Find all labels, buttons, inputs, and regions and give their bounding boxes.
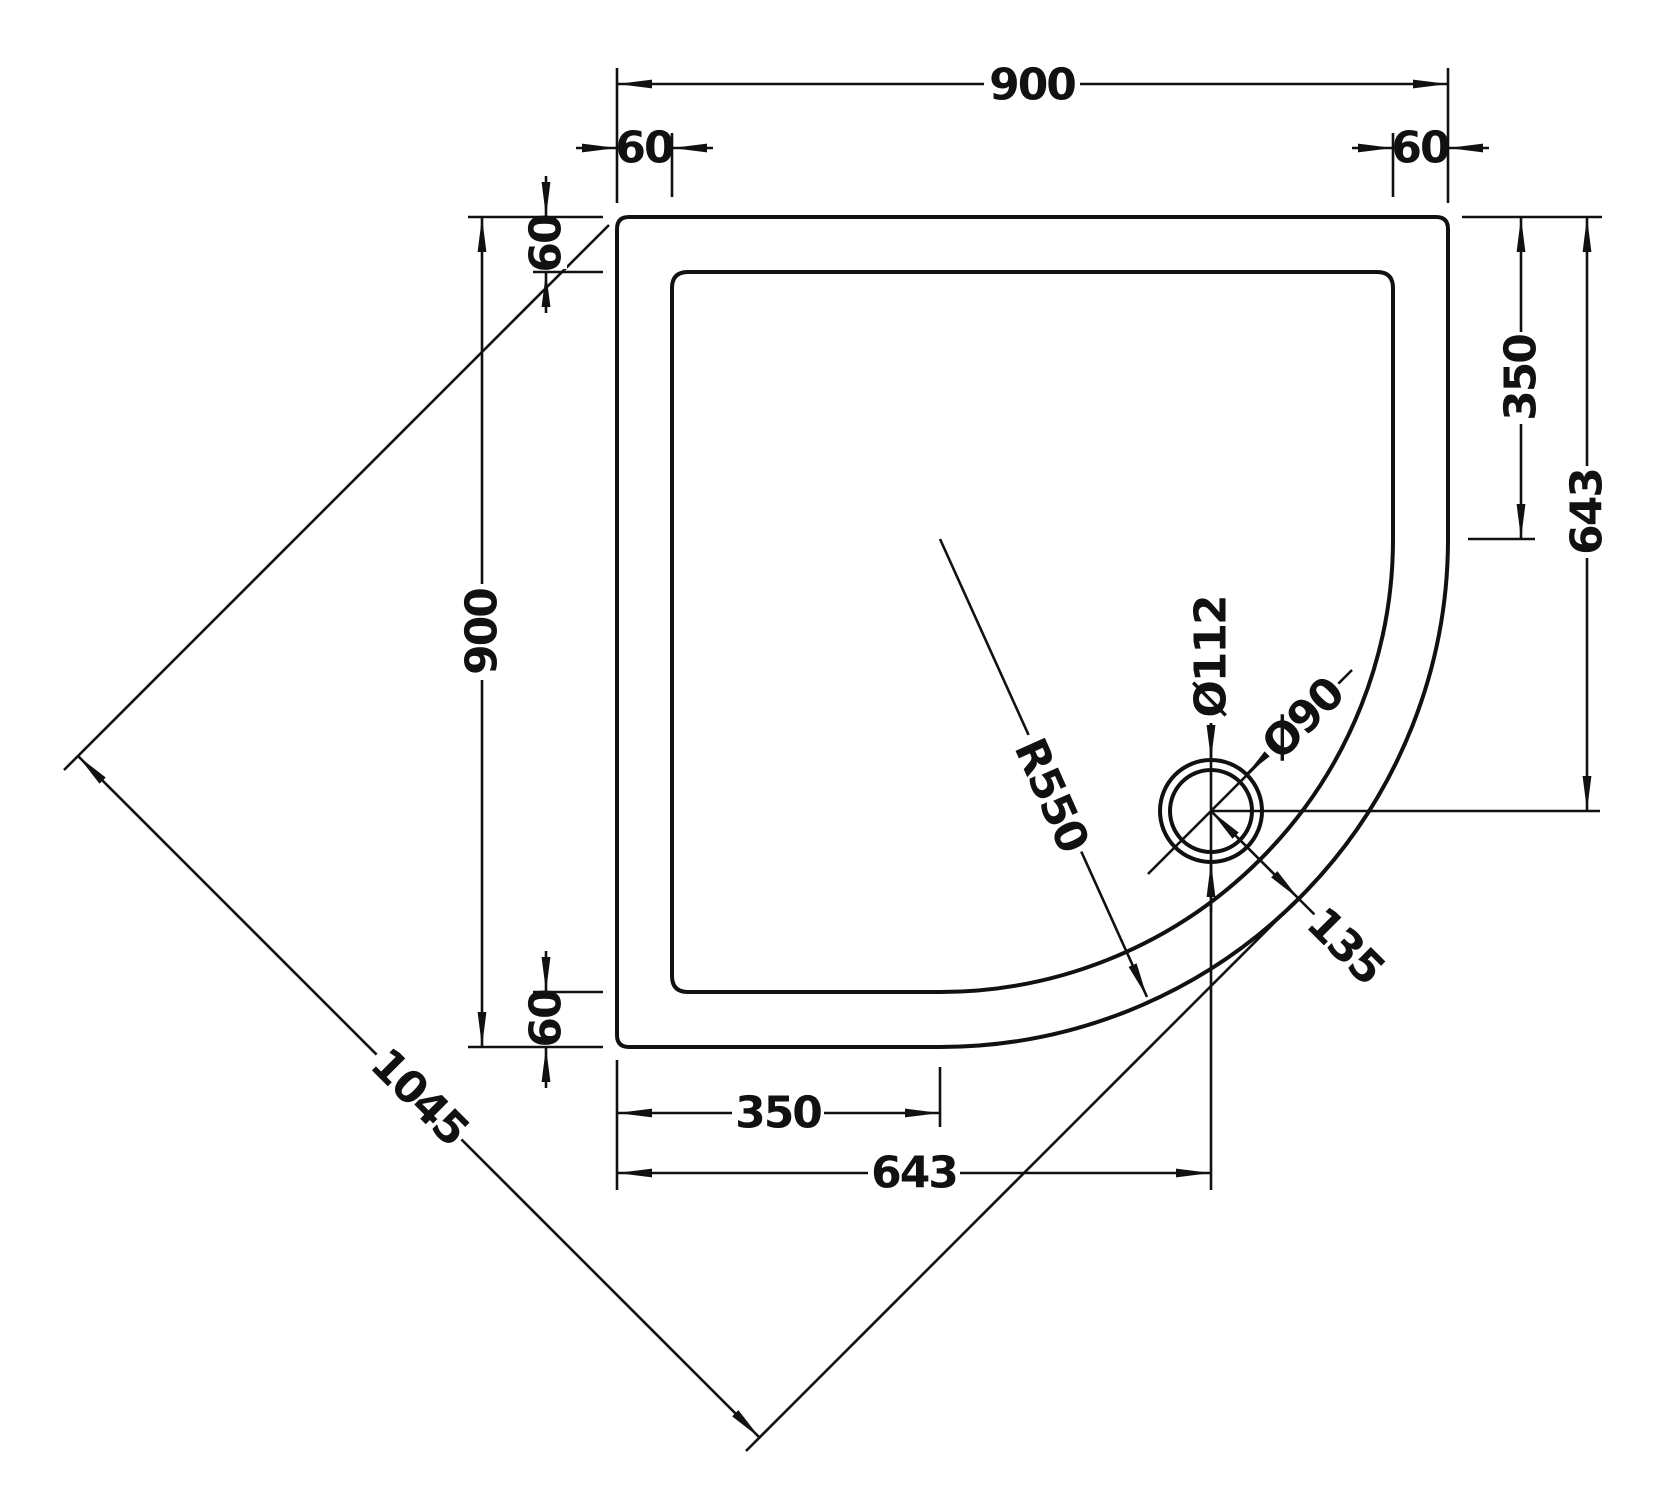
dim-text-top-width: 900 bbox=[989, 60, 1075, 111]
dim-text-left-height: 900 bbox=[457, 589, 508, 675]
dim-text-bottom-arc-offset: 350 bbox=[735, 1088, 821, 1139]
shower-tray-drawing: 900 60 60 900 60 60 350 643 bbox=[0, 0, 1653, 1499]
label-bottom-drain-offset: 643 bbox=[868, 1148, 960, 1199]
dimension-lines bbox=[78, 84, 1587, 1438]
label-left-height: 900 bbox=[457, 584, 508, 680]
leader-lines bbox=[940, 539, 1352, 997]
dim-text-corner-radius: R550 bbox=[1004, 731, 1099, 860]
extension-lines bbox=[64, 68, 1602, 1451]
ext-diagonal-corner bbox=[64, 225, 609, 770]
label-bottom-arc-offset: 350 bbox=[732, 1088, 824, 1139]
label-top-width: 900 bbox=[984, 60, 1080, 111]
dim-text-bottom-drain-offset: 643 bbox=[871, 1148, 957, 1199]
label-corner-radius: R550 bbox=[1002, 726, 1101, 864]
label-left-wall-bottom: 60 bbox=[521, 990, 572, 1048]
dim-text-waste-outer-diameter: Ø112 bbox=[1186, 596, 1237, 717]
dim-text-right-arc-offset: 350 bbox=[1496, 335, 1547, 421]
label-right-drain-offset: 643 bbox=[1562, 466, 1613, 558]
label-left-wall-top: 60 bbox=[521, 215, 572, 273]
dim-text-left-wall-top: 60 bbox=[521, 215, 572, 273]
dim-text-top-wall-right: 60 bbox=[1391, 123, 1449, 174]
label-waste-outer-diameter: Ø112 bbox=[1186, 591, 1237, 723]
dim-text-top-wall-left: 60 bbox=[615, 123, 673, 174]
dim-text-left-wall-bottom: 60 bbox=[521, 990, 572, 1048]
label-top-wall-left: 60 bbox=[615, 123, 673, 174]
label-diagonal: 1045 bbox=[359, 1037, 480, 1158]
label-top-wall-right: 60 bbox=[1391, 123, 1449, 174]
label-right-arc-offset: 350 bbox=[1496, 332, 1547, 424]
dimension-labels: 900 60 60 900 60 60 350 643 bbox=[359, 60, 1613, 1199]
technical-drawing-canvas: 900 60 60 900 60 60 350 643 bbox=[0, 0, 1653, 1499]
dim-line-drain-corner-offset bbox=[1211, 811, 1299, 899]
dim-text-right-drain-offset: 643 bbox=[1562, 469, 1613, 555]
